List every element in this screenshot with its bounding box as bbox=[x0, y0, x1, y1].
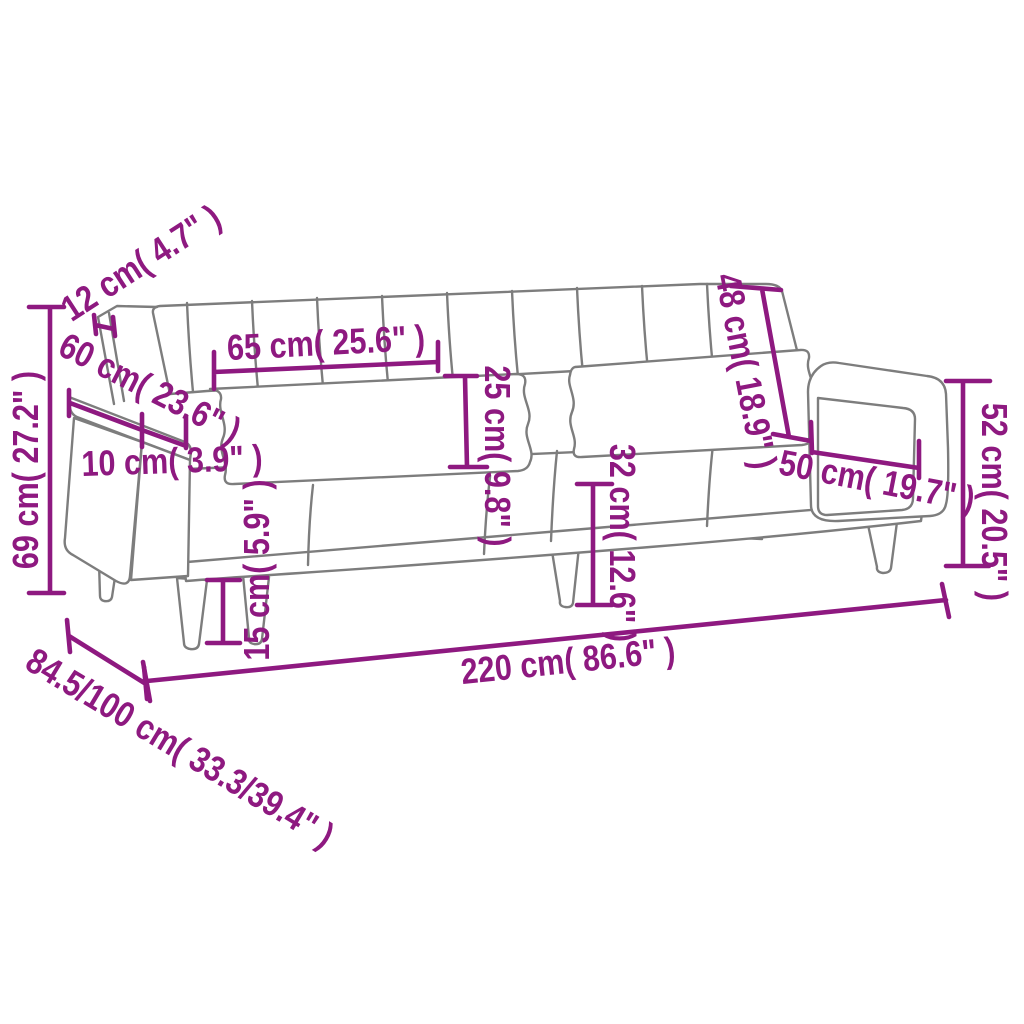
sofa-dimension-diagram: 12 cm( 4.7" ) 60 cm( 23.6" ) 69 cm( 27.2… bbox=[0, 0, 1024, 1024]
dimension-label-52cm: 52 cm( 20.5" ) bbox=[976, 403, 1012, 601]
dimension-label-32cm: 32 cm( 12.6" ) bbox=[604, 444, 640, 642]
sofa-leg bbox=[867, 520, 897, 573]
dimension-label-65cm: 65 cm( 25.6" ) bbox=[226, 320, 426, 366]
dimension-label-15cm: 15 cm( 5.9" ) bbox=[239, 479, 275, 660]
dimension-label-69cm: 69 cm( 27.2" ) bbox=[8, 371, 44, 569]
sofa-leg bbox=[177, 578, 207, 649]
dimension-label-10cm: 10 cm( 3.9" ) bbox=[81, 440, 263, 482]
dimension-label-25cm: 25 cm( 9.8" ) bbox=[479, 365, 515, 546]
